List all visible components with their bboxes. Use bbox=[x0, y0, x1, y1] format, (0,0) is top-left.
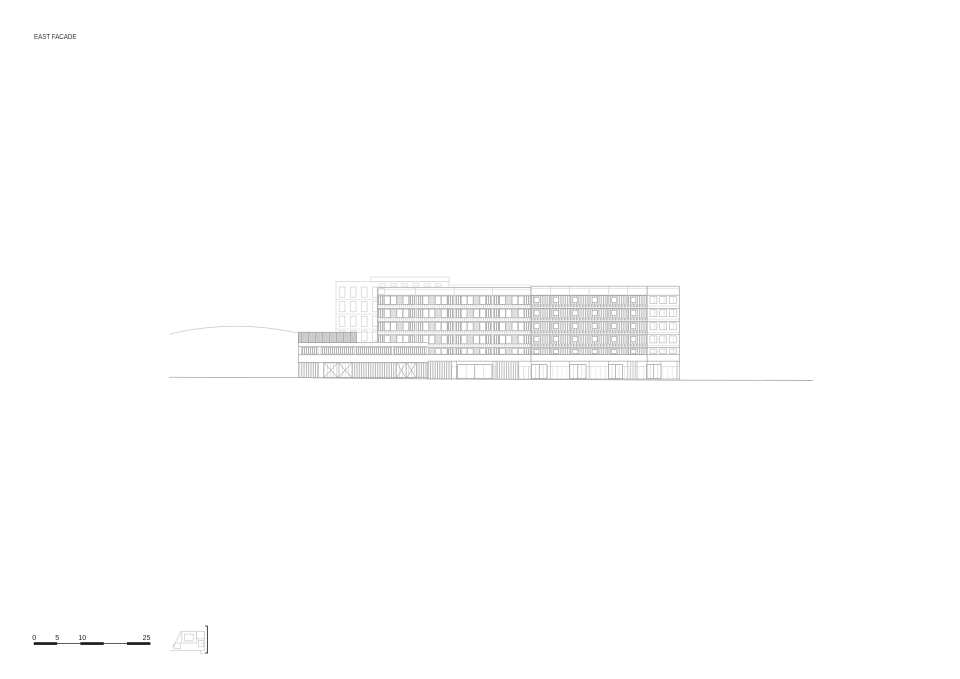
svg-text:EAST FACADE: EAST FACADE bbox=[34, 32, 77, 41]
svg-text:5: 5 bbox=[55, 635, 59, 642]
svg-text:0: 0 bbox=[32, 635, 36, 642]
svg-text:25: 25 bbox=[143, 635, 151, 642]
svg-text:10: 10 bbox=[78, 635, 86, 642]
